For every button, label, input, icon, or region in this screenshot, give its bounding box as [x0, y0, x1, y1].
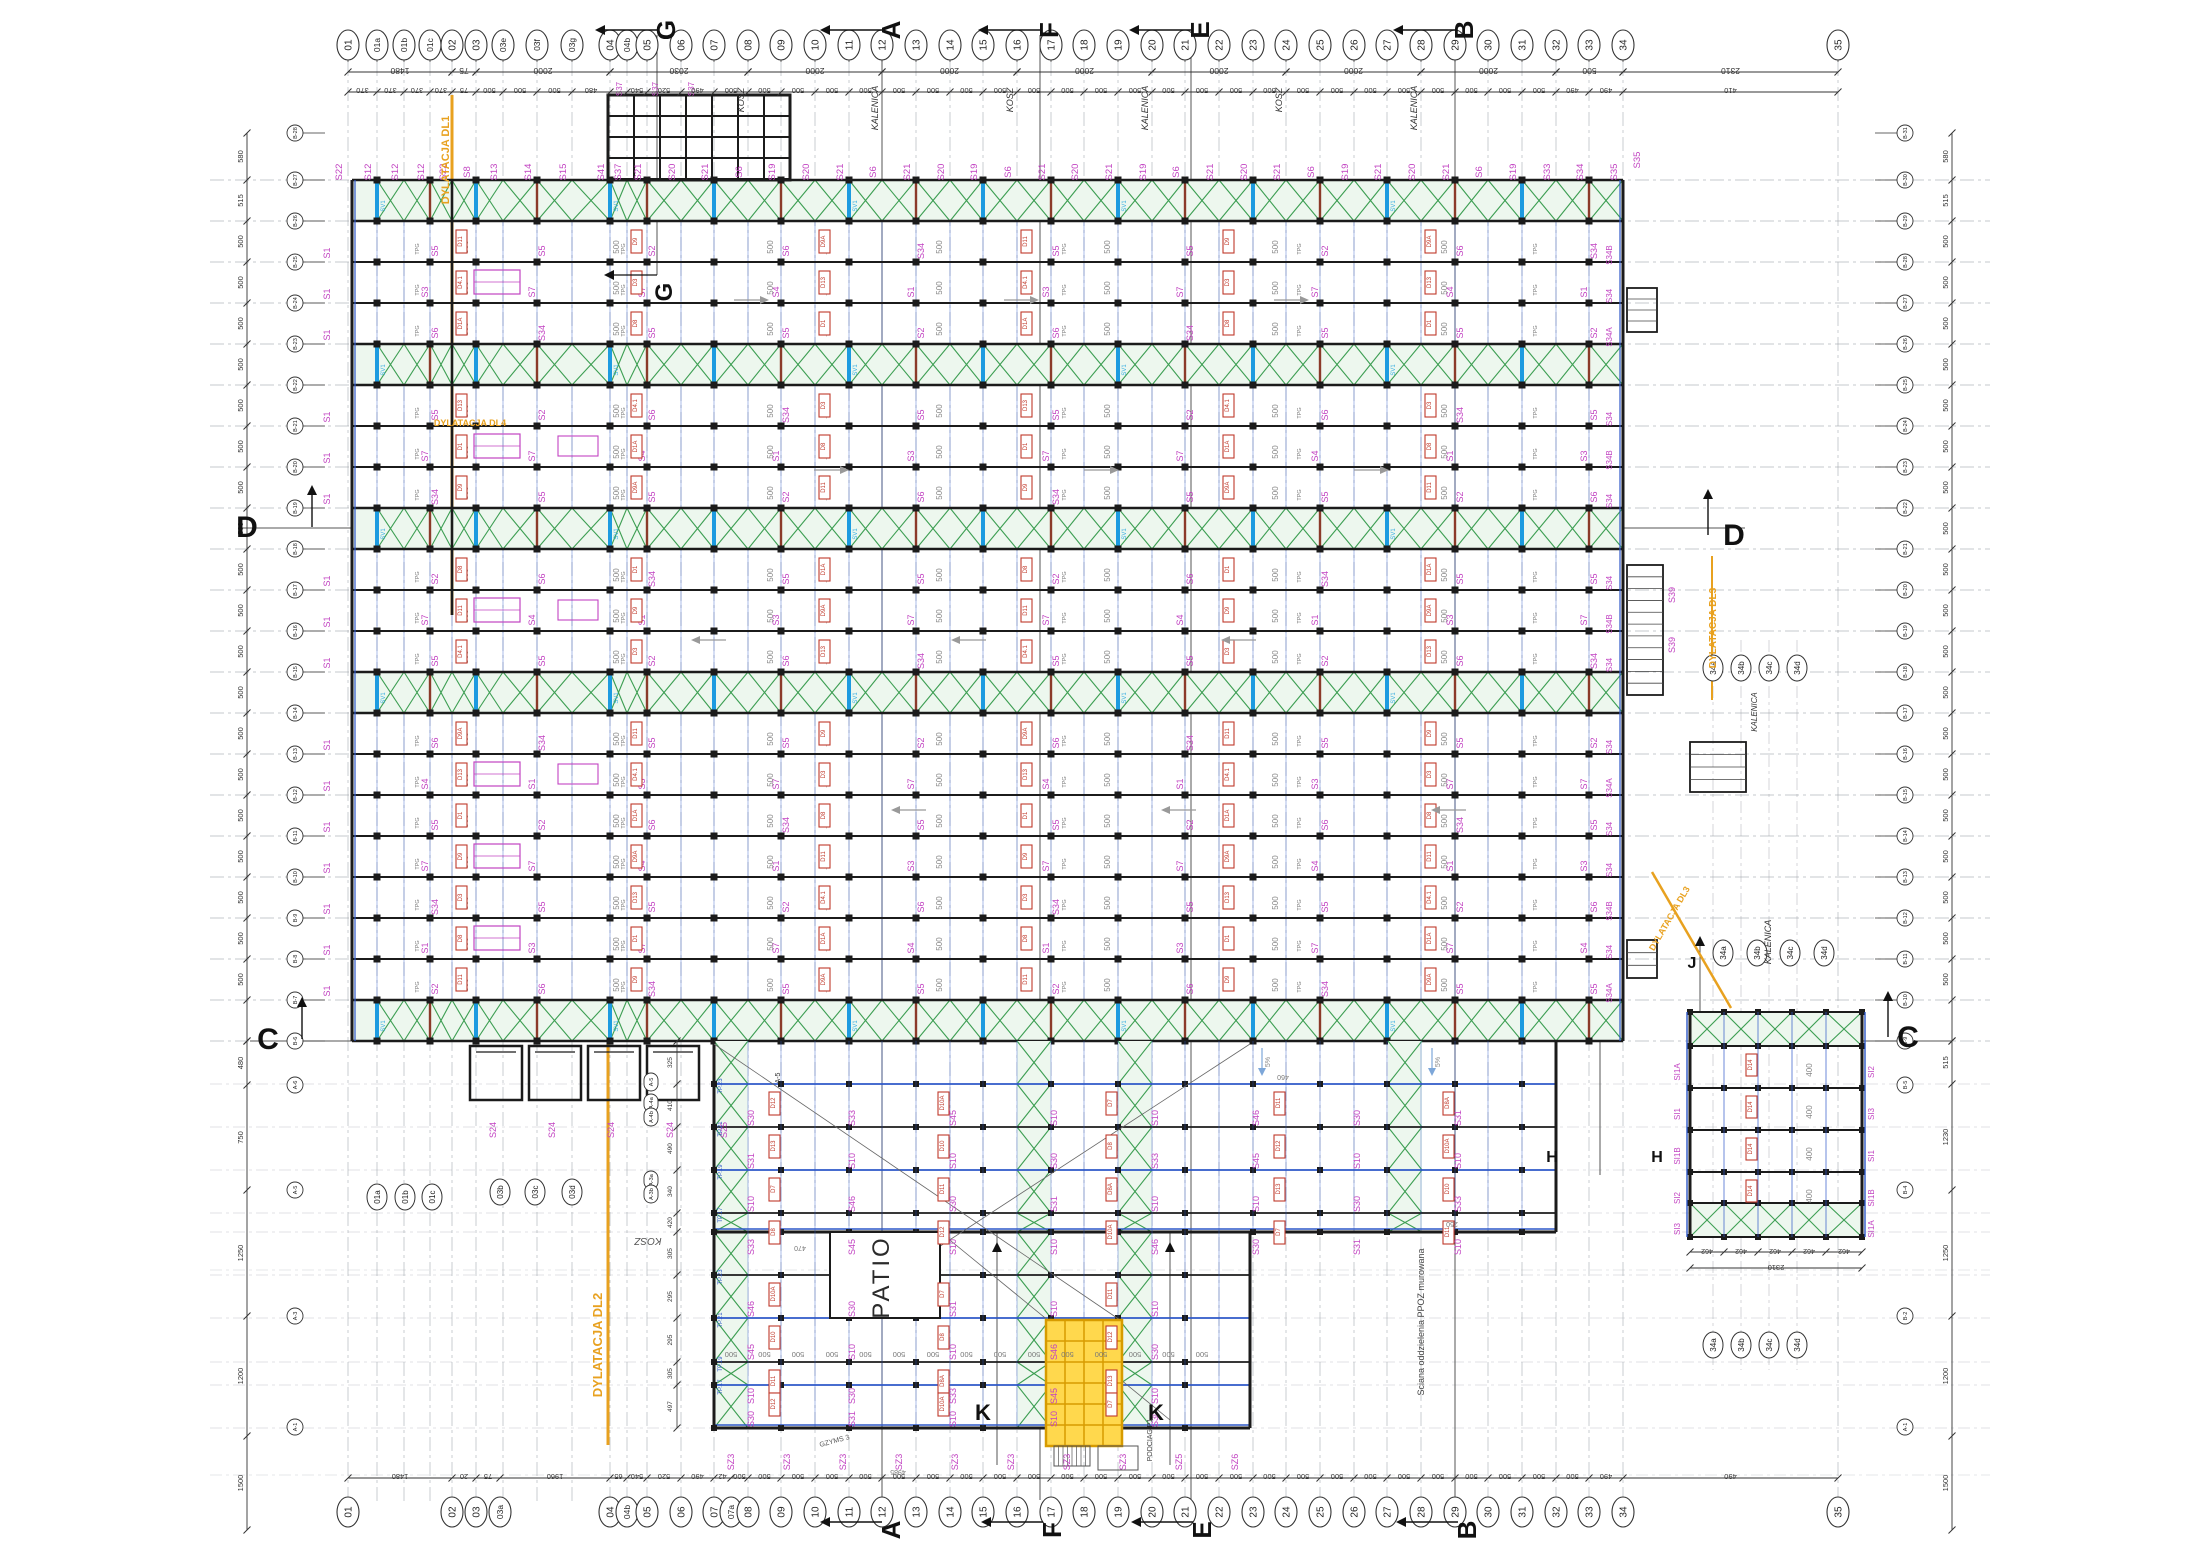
dim-value: 490: [667, 1143, 674, 1154]
column: [1317, 751, 1324, 758]
s-label: S34B: [1605, 614, 1614, 634]
s-label: S1: [322, 657, 332, 668]
column: [1519, 997, 1526, 1004]
s-label: S19: [1138, 164, 1149, 181]
dim-value: 500: [1941, 317, 1950, 330]
dim-label: 500: [766, 568, 775, 582]
axis-bubble-label: B-26: [1903, 338, 1909, 350]
dim-value: 500: [758, 1350, 771, 1359]
dim-value: 500: [1499, 86, 1512, 95]
column: [1115, 997, 1122, 1004]
d-label: D1: [458, 811, 464, 819]
column: [607, 218, 614, 225]
axis-bubble-label: 19: [1114, 39, 1125, 51]
axis-bubble-label: 06: [677, 1506, 688, 1518]
slope-arrow: [691, 636, 700, 644]
s-label: S6: [1051, 327, 1061, 338]
dim-value: 305: [667, 1368, 674, 1379]
tpg-label: TPG: [1062, 653, 1068, 664]
s-label: S19: [1340, 164, 1351, 181]
s-label: S24: [488, 1122, 498, 1138]
column: [711, 997, 718, 1004]
dim-label: 500: [1440, 568, 1449, 582]
dim-value: 2310: [1721, 66, 1740, 76]
s-label: S6: [537, 573, 547, 584]
dim-value: 500: [1331, 86, 1344, 95]
s-label: S1: [322, 411, 332, 422]
dim-label: 500: [766, 732, 775, 746]
dim-label: 500: [1103, 650, 1112, 664]
column: [1452, 177, 1459, 184]
sv-label: SV1: [853, 692, 859, 704]
column: [711, 587, 718, 594]
d-label: D4.1: [821, 891, 827, 904]
column: [711, 833, 718, 840]
s-label: S4: [906, 942, 916, 953]
column: [1048, 997, 1055, 1004]
dim-value: 1250: [1941, 1245, 1950, 1262]
d-label: D4.1: [1023, 276, 1029, 289]
d-label: D8: [940, 1333, 946, 1341]
column: [1182, 669, 1189, 676]
dim-value: 305: [667, 1248, 674, 1259]
dim-value: 500: [236, 235, 245, 248]
s-label: S35: [1632, 152, 1643, 169]
dim-value: 500: [826, 86, 839, 95]
column: [534, 546, 541, 553]
d-label: D8: [1023, 565, 1029, 573]
column: [644, 710, 651, 717]
d-label: D13: [1023, 399, 1029, 411]
tpg-label: TPG: [621, 858, 627, 869]
s-label: S1: [322, 575, 332, 586]
column: [374, 915, 381, 922]
dim-value: 462: [1735, 1247, 1747, 1254]
tpg-label: TPG: [1297, 817, 1303, 828]
s-label: S34: [1605, 288, 1614, 303]
column: [1519, 710, 1526, 717]
column: [427, 669, 434, 676]
section-letter: H: [1546, 1149, 1558, 1166]
column: [980, 505, 987, 512]
axis-bubble-label: 07: [710, 1506, 721, 1518]
s-label: S34: [1589, 653, 1599, 669]
axis-bubble-label: 12: [878, 39, 889, 51]
dim-value: 370: [356, 86, 369, 95]
s-label: S2: [916, 327, 926, 338]
tpg-label: TPG: [1533, 735, 1539, 746]
s-label: S3: [1310, 778, 1320, 789]
tpg-label: TPG: [415, 817, 421, 828]
dim-label: 500: [766, 445, 775, 459]
s-label: S4: [527, 614, 537, 625]
axis-bubble-label: B-28: [1903, 256, 1909, 268]
axis-bubble-label: 26: [1350, 39, 1361, 51]
tpg-label: TPG: [415, 735, 421, 746]
dim-label: 500: [1440, 609, 1449, 623]
tpg-label: TPG: [415, 325, 421, 336]
dim-value: 500: [994, 1472, 1007, 1481]
s-label: S30: [1251, 1239, 1261, 1255]
column: [1250, 464, 1257, 471]
column: [1182, 423, 1189, 430]
dim-label: 500: [766, 937, 775, 951]
s-label: S21: [1441, 164, 1452, 181]
dim-value: 1200: [1941, 1368, 1950, 1385]
dim-value: 500: [1398, 1472, 1411, 1481]
axis-bubble-label: B-27: [293, 174, 299, 186]
column: [1519, 505, 1526, 512]
opening-box: [558, 764, 598, 784]
dim-value: 500: [1028, 86, 1041, 95]
s-label: S7: [420, 614, 430, 625]
d-label: D8A: [940, 1375, 946, 1387]
axis-bubble-label: 25: [1316, 1506, 1327, 1518]
strut-blue: [1520, 344, 1524, 385]
column: [980, 218, 987, 225]
axis-bubble-label: 09: [777, 1506, 788, 1518]
column: [980, 710, 987, 717]
column: [1384, 382, 1391, 389]
dim-value: 500: [236, 645, 245, 658]
column: [980, 792, 987, 799]
section-cut-lines: [238, 35, 1952, 1500]
axis-bubble-label: 34d: [1793, 661, 1802, 674]
sz-label: SZ3: [726, 1454, 736, 1471]
axis-bubble-label: B-25: [1903, 379, 1909, 391]
section-arrow: [992, 1242, 1002, 1252]
d-label: D9A: [1427, 605, 1433, 617]
d-label: D1: [1427, 319, 1433, 327]
column: [778, 259, 785, 266]
s-label: S5: [647, 901, 657, 912]
column: [778, 751, 785, 758]
column: [711, 505, 718, 512]
column: [473, 218, 480, 225]
column: [778, 792, 785, 799]
d-label: D12: [771, 1097, 777, 1109]
s-label: S6: [1455, 245, 1465, 256]
dim-value: 1250: [236, 1245, 245, 1262]
column: [1317, 956, 1324, 963]
s-label: S34: [1320, 981, 1330, 997]
axis-bubble-label: B-8: [293, 955, 299, 964]
d-label: D3: [633, 647, 639, 655]
sv-label: SV1: [1122, 364, 1128, 376]
d-label: D11: [821, 851, 827, 862]
column: [534, 1038, 541, 1045]
section-letter: G: [651, 283, 678, 302]
sv-label: SV1: [1122, 200, 1128, 212]
s-label: S34: [781, 407, 791, 423]
d-label: D8: [458, 934, 464, 942]
column: [1317, 833, 1324, 840]
column: [1519, 956, 1526, 963]
column: [913, 997, 920, 1004]
column: [1115, 669, 1122, 676]
s-label: S1: [322, 452, 332, 463]
dim-value: 500: [1263, 1472, 1276, 1481]
column: [846, 300, 853, 307]
axis-bubble-label: A-5: [649, 1078, 655, 1087]
tpg-label: TPG: [1062, 776, 1068, 787]
section-arrow: [1883, 991, 1893, 1001]
column: [1048, 751, 1055, 758]
d-label: D3: [1225, 278, 1231, 286]
column: [1452, 751, 1459, 758]
column: [1384, 505, 1391, 512]
s-label: S20: [667, 164, 678, 181]
dim-value: 500: [1941, 481, 1950, 494]
d-label: D9: [1225, 237, 1231, 245]
s-label: S4: [1579, 942, 1589, 953]
dim-value: 500: [1061, 1472, 1074, 1481]
column: [1452, 464, 1459, 471]
d-label: D7: [940, 1290, 946, 1298]
s-label: S21: [1037, 164, 1048, 181]
axis-bubble-label: B-22: [293, 379, 299, 391]
d-label: D8: [1427, 811, 1433, 819]
column: [374, 505, 381, 512]
dim-value: 500: [1095, 86, 1108, 95]
dim-label: 400: [1805, 1105, 1814, 1119]
sv-label: SV1: [614, 528, 620, 540]
axis-bubble-label: 33: [1585, 39, 1596, 51]
dim-value: 500: [792, 1472, 805, 1481]
column: [534, 710, 541, 717]
dim-value: 500: [1095, 1350, 1108, 1359]
s-label: S5: [1051, 655, 1061, 666]
column: [980, 628, 987, 635]
strut-blue: [981, 344, 985, 385]
column: [913, 218, 920, 225]
floor-plan-canvas: S37S37S37S24S24S24S24S25S39S39S22S12S12S…: [0, 0, 2200, 1555]
axis-bubble-label: 08: [744, 39, 755, 51]
column: [1048, 218, 1055, 225]
sv-label: SV1: [1391, 528, 1397, 540]
column: [473, 956, 480, 963]
dim-value: 500: [1230, 1472, 1243, 1481]
column: [1115, 259, 1122, 266]
s-label: S6: [1455, 655, 1465, 666]
s-label: S10: [847, 1153, 857, 1169]
column: [980, 587, 987, 594]
column: [1115, 956, 1122, 963]
axis-bubble-label: B-17: [1903, 707, 1909, 719]
dim-value: 500: [1941, 235, 1950, 248]
column: [778, 300, 785, 307]
column: [846, 382, 853, 389]
s-label: S34: [1605, 657, 1614, 672]
tpg-label: TPG: [1533, 407, 1539, 418]
column: [778, 464, 785, 471]
s-label: S10: [1049, 1411, 1059, 1427]
strut-blue: [474, 672, 478, 713]
s-label: S37: [613, 164, 624, 181]
d-label: D9A: [821, 236, 827, 248]
strut-blue: [712, 1000, 716, 1041]
strut-blue: [1116, 1000, 1120, 1041]
column: [1048, 259, 1055, 266]
dim-value: 500: [792, 86, 805, 95]
column: [846, 997, 853, 1004]
tpg-label: TPG: [621, 899, 627, 910]
d-label: D11: [821, 482, 827, 493]
column: [846, 505, 853, 512]
dim-value: 462: [1803, 1247, 1815, 1254]
axis-bubble-label: 07: [710, 39, 721, 51]
column: [607, 587, 614, 594]
dim-label: 500: [612, 855, 621, 869]
sz-label: SZ3: [1006, 1454, 1016, 1471]
column: [711, 259, 718, 266]
section-letter: J: [1688, 955, 1697, 972]
d-label: D9A: [633, 851, 639, 863]
column: [1048, 177, 1055, 184]
s-label: S10: [1150, 1301, 1160, 1317]
column: [1115, 546, 1122, 553]
dim-value: 500: [236, 440, 245, 453]
podciag-label: PODCIAG P1: [1147, 1419, 1154, 1462]
s-label: S1: [322, 780, 332, 791]
axis-bubble-label: 09: [777, 39, 788, 51]
dim-value: 500: [236, 317, 245, 330]
axis-bubble-label: 31: [1518, 39, 1529, 51]
column: [374, 874, 381, 881]
dim-value: 500: [758, 86, 771, 95]
column: [1250, 177, 1257, 184]
s-label: S46: [1049, 1344, 1059, 1360]
column: [1586, 177, 1593, 184]
strut-blue: [474, 508, 478, 549]
axis-bubble-label: B-13: [293, 748, 299, 760]
dim-value: 480: [236, 1057, 245, 1070]
d-label: D8: [821, 811, 827, 819]
tpg-label: TPG: [1533, 612, 1539, 623]
tpg-label: TPG: [1297, 407, 1303, 418]
d-label: D8A: [1445, 1097, 1451, 1109]
axis-bubble-label: 34b: [1737, 1338, 1746, 1352]
dim-label: 500: [935, 650, 944, 664]
dim-value: 500: [1162, 86, 1175, 95]
dim-label: 500: [1440, 814, 1449, 828]
tpg-label: TPG: [621, 325, 627, 336]
dim-label: 500: [1103, 240, 1112, 254]
s-label: S5: [430, 655, 440, 666]
column: [534, 464, 541, 471]
s-label: S2: [1589, 327, 1599, 338]
column: [427, 259, 434, 266]
dim-value: 420: [667, 1217, 674, 1228]
strut-blue: [847, 1000, 851, 1041]
column: [1250, 423, 1257, 430]
dim-value: 500: [1129, 1350, 1142, 1359]
column: [1586, 792, 1593, 799]
column: [1182, 218, 1189, 225]
column: [644, 300, 651, 307]
axis-bubble-label: 04b: [622, 1505, 632, 1519]
tpg-label: TPG: [621, 653, 627, 664]
d-label: D3: [1023, 893, 1029, 901]
axis-bubble-label: 32: [1552, 1506, 1563, 1518]
d-label: D4.1: [458, 645, 464, 658]
tpg-label: TPG: [1062, 981, 1068, 992]
dim-value: 340: [667, 1186, 674, 1197]
dim-value: 515: [1941, 1056, 1950, 1069]
dim-value: 515: [1941, 194, 1950, 207]
dim-value: 2000: [533, 66, 552, 76]
strut-blue: [608, 180, 612, 221]
s-label: S7: [1579, 614, 1589, 625]
dim-value: 497: [667, 1401, 674, 1412]
dim-value: 500: [1499, 1472, 1512, 1481]
s-label: S12: [390, 164, 401, 181]
dim-label: 500: [1271, 281, 1280, 295]
s-label: S2: [430, 983, 440, 994]
s-label: S34: [916, 243, 926, 259]
tp-label: TP.21: [718, 1121, 724, 1137]
s-label: S34: [1605, 821, 1614, 836]
axis-bubble-label: 13: [912, 1506, 923, 1518]
axis-bubble-label: 29: [1451, 39, 1462, 51]
sv-label: SV1: [1391, 1020, 1397, 1032]
d-label: D3: [1225, 647, 1231, 655]
s-label: S1: [322, 821, 332, 832]
column: [534, 833, 541, 840]
column: [644, 423, 651, 430]
dim-value: 540: [631, 1472, 644, 1481]
column: [711, 218, 718, 225]
column: [1384, 628, 1391, 635]
dim-value: 500: [1061, 86, 1074, 95]
tp-label: TP.23: [718, 1269, 724, 1285]
s-label: S3: [906, 450, 916, 461]
column: [913, 833, 920, 840]
s-label: S30: [746, 1110, 756, 1126]
si-label: SI3: [1673, 1222, 1682, 1235]
column: [846, 628, 853, 635]
axis-bubble-label: B-15: [293, 666, 299, 678]
column: [1048, 587, 1055, 594]
dim-label: 500: [1440, 322, 1449, 336]
column: [1250, 628, 1257, 635]
s-label: S24: [606, 1122, 616, 1138]
tpg-label: TPG: [621, 612, 627, 623]
column: [644, 1038, 651, 1045]
column: [980, 546, 987, 553]
dim-label: 500: [1440, 937, 1449, 951]
column: [778, 669, 785, 676]
strut-blue: [712, 180, 716, 221]
dim-value: 462: [1838, 1247, 1850, 1254]
strut-blue: [1116, 672, 1120, 713]
dim-value: 500: [1941, 891, 1950, 904]
axis-bubble-label: B-24: [293, 297, 299, 309]
dim-label: 500: [612, 281, 621, 295]
dim-label: 500: [1103, 773, 1112, 787]
s-label: S34: [647, 981, 657, 997]
column: [534, 587, 541, 594]
s-label: S10: [746, 1196, 756, 1212]
d-label: D13: [1108, 1375, 1114, 1387]
dim-value: 500: [236, 891, 245, 904]
axis-bubble-label: 04: [606, 1506, 617, 1518]
column: [1317, 259, 1324, 266]
axis-bubble-label: A-1: [1903, 1423, 1909, 1432]
dim-label: 500: [1440, 404, 1449, 418]
column: [1452, 874, 1459, 881]
d-label: D8: [1023, 934, 1029, 942]
